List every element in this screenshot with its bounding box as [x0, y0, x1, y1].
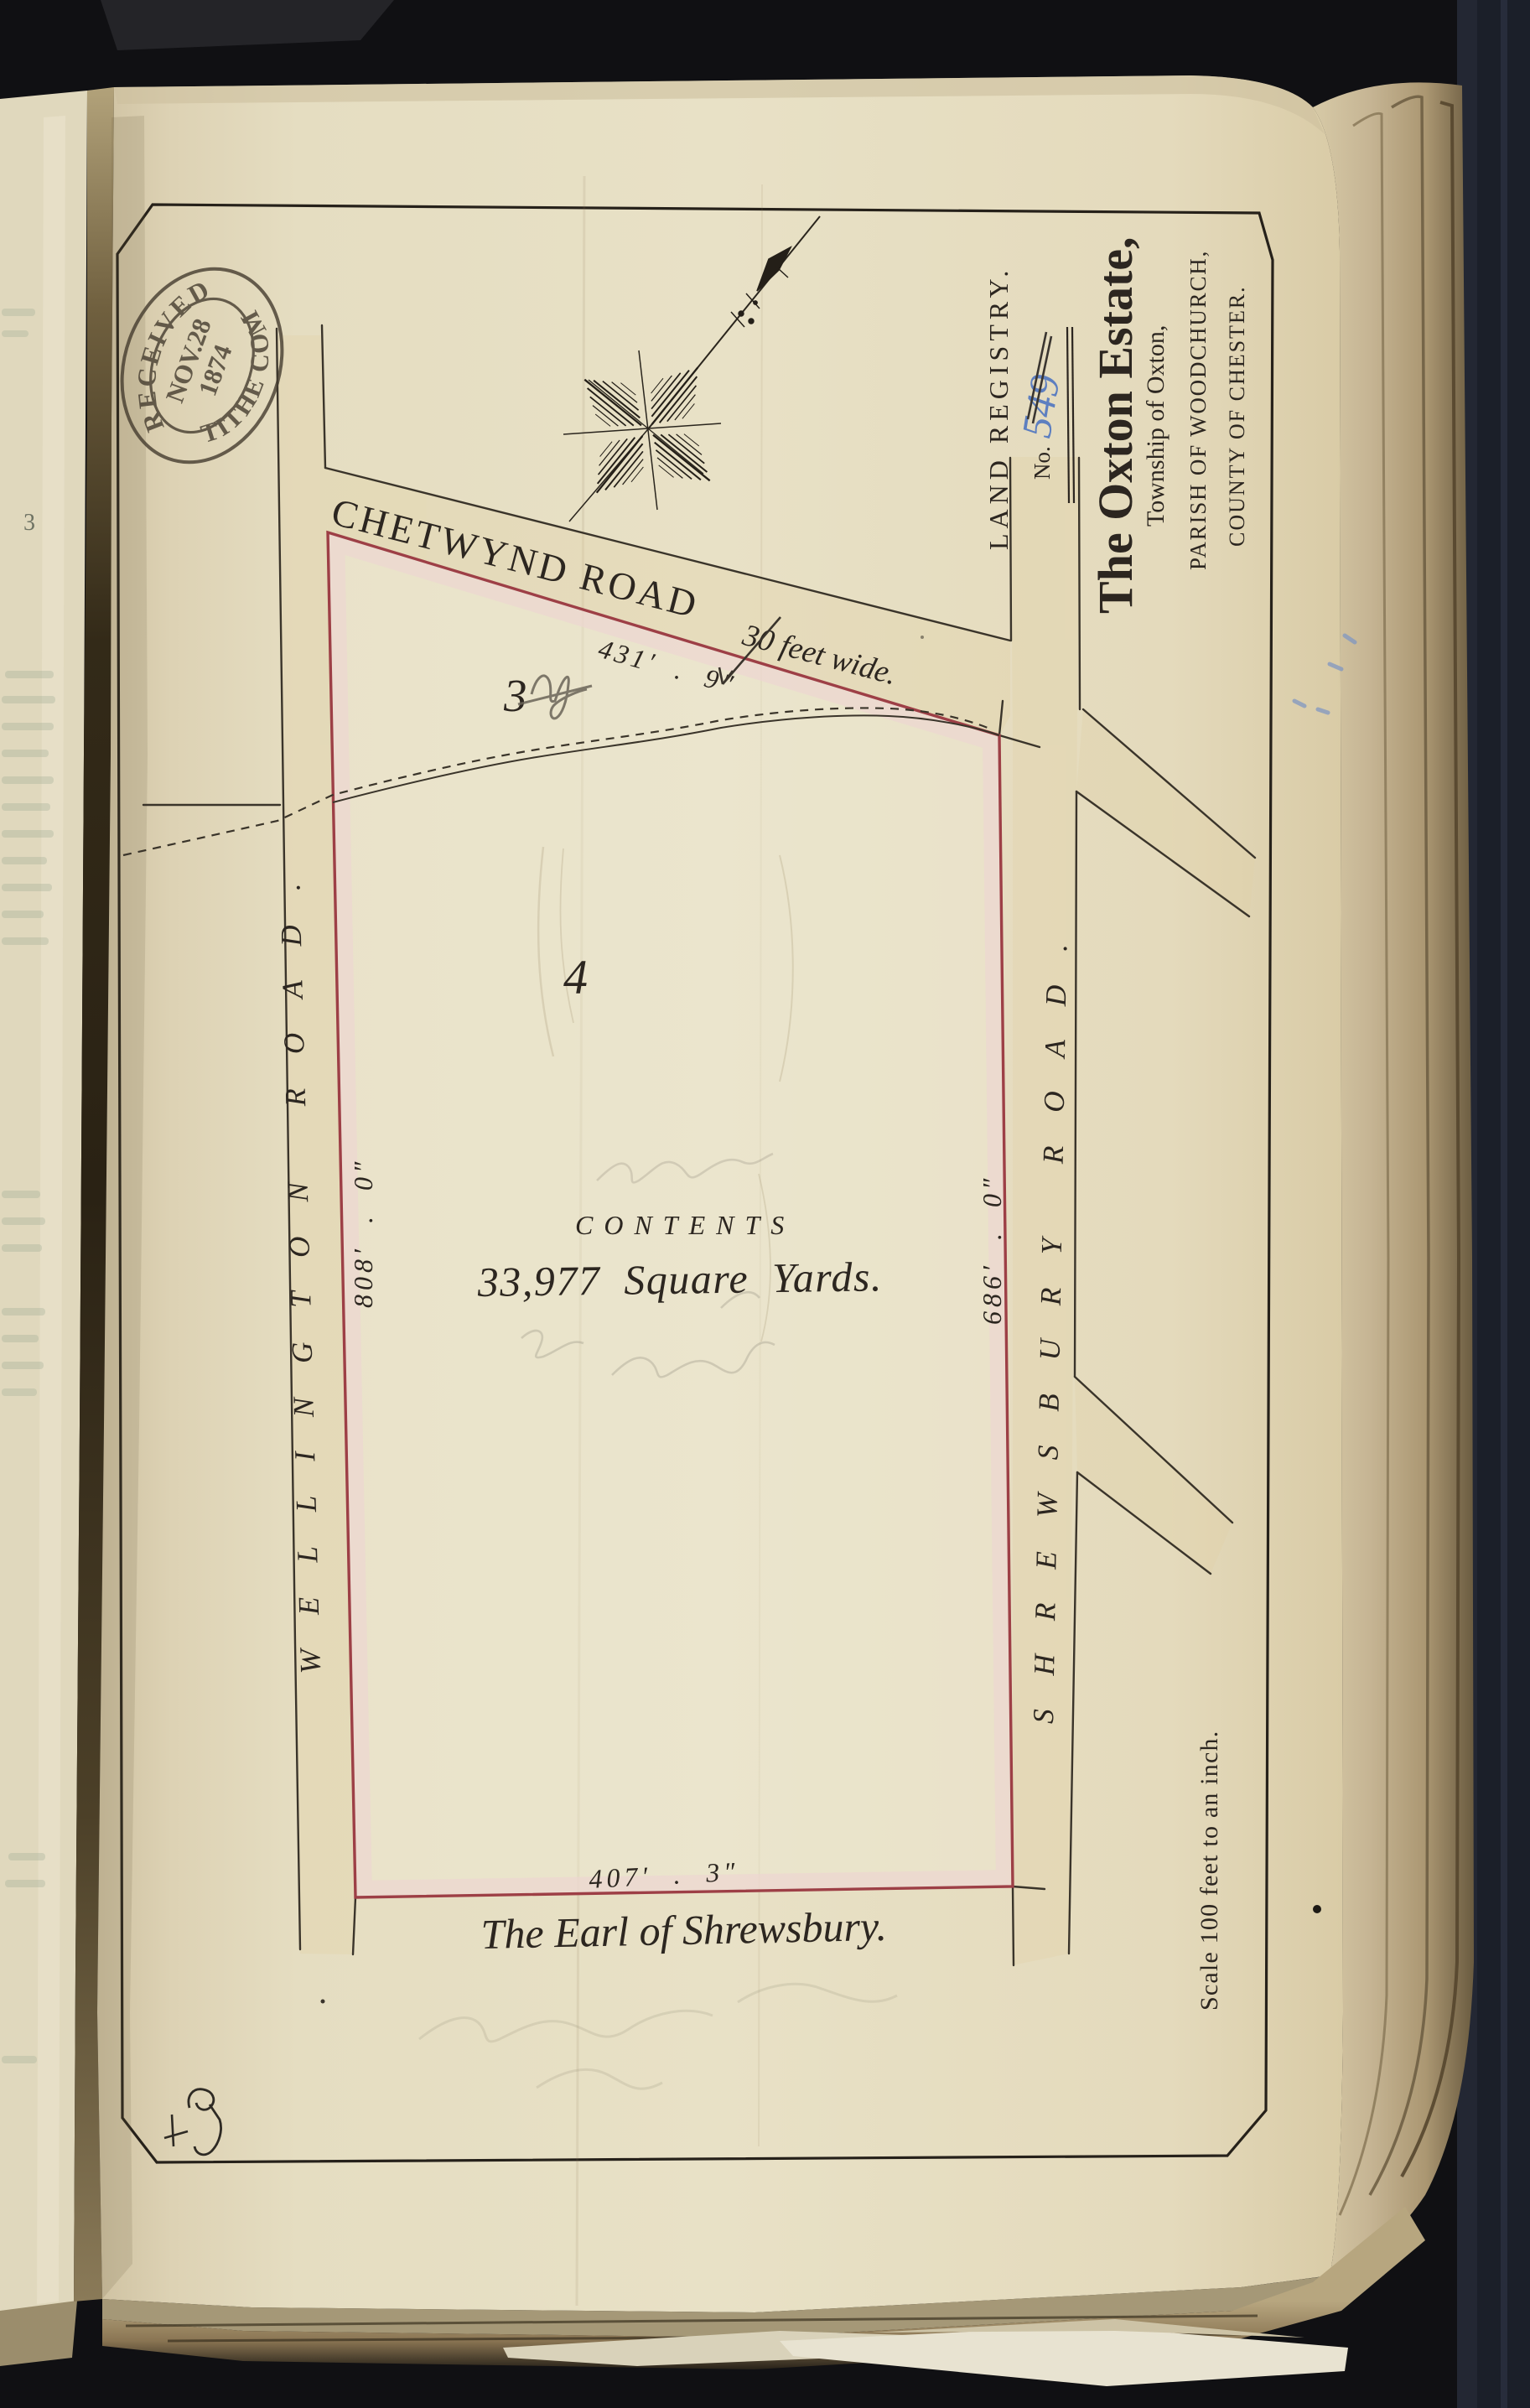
svg-text:LAND REGISTRY.: LAND REGISTRY. [983, 266, 1014, 550]
svg-text:PARISH OF WOODCHURCH,: PARISH OF WOODCHURCH, [1185, 250, 1211, 570]
svg-text:33,977 Square Yards.: 33,977 Square Yards. [476, 1253, 883, 1305]
svg-text:549: 549 [1013, 371, 1069, 441]
svg-text:Scale 100 feet to an inch.: Scale 100 feet to an inch. [1195, 1731, 1223, 2011]
svg-text:Township of Oxton,: Township of Oxton, [1142, 325, 1170, 527]
svg-text:COUNTY OF CHESTER.: COUNTY OF CHESTER. [1225, 285, 1249, 547]
svg-text:The Oxton Estate,: The Oxton Estate, [1088, 237, 1143, 615]
svg-text:4: 4 [563, 950, 588, 1004]
svg-text:3: 3 [23, 510, 35, 536]
svg-text:3: 3 [503, 670, 527, 721]
svg-text:The Earl of Shrewsbury.: The Earl of Shrewsbury. [480, 1902, 887, 1958]
svg-text:686′ . 0″: 686′ . 0″ [977, 1175, 1007, 1325]
svg-text:No.: No. [1030, 446, 1055, 480]
svg-text:808′ . 0″: 808′ . 0″ [348, 1158, 378, 1308]
svg-text:CONTENTS: CONTENTS [575, 1210, 795, 1240]
